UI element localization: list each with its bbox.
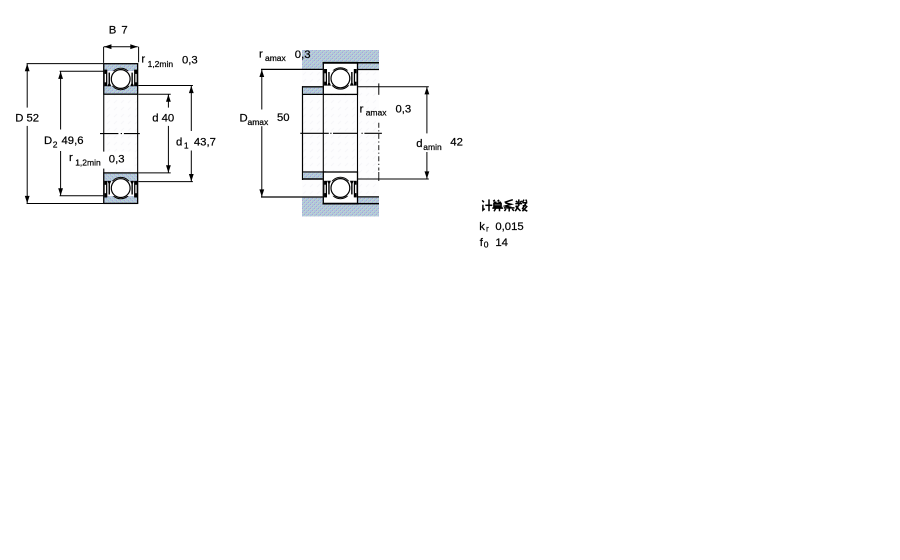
svg-text:D: D [44, 135, 52, 147]
svg-text:k: k [479, 221, 485, 233]
svg-text:0,3: 0,3 [182, 55, 198, 67]
svg-text:0,3: 0,3 [396, 104, 412, 116]
svg-text:D 52: D 52 [15, 113, 39, 125]
svg-text:r: r [259, 49, 263, 61]
svg-text:1,2min: 1,2min [75, 158, 101, 168]
svg-text:amax: amax [248, 117, 270, 127]
svg-text:1: 1 [184, 140, 189, 150]
svg-text:r: r [141, 54, 145, 66]
svg-text:r: r [486, 224, 489, 234]
svg-text:B: B [109, 25, 117, 37]
svg-text:43,7: 43,7 [194, 137, 216, 149]
svg-text:amax: amax [265, 53, 287, 63]
svg-text:50: 50 [277, 112, 290, 124]
svg-text:0: 0 [484, 240, 489, 250]
svg-text:7: 7 [121, 25, 127, 37]
svg-text:42: 42 [450, 137, 463, 149]
svg-text:amin: amin [423, 142, 442, 152]
svg-text:14: 14 [495, 237, 508, 249]
svg-text:0,015: 0,015 [495, 221, 523, 233]
svg-text:D: D [240, 113, 248, 125]
svg-text:d 40: d 40 [152, 113, 174, 125]
svg-text:0,3: 0,3 [295, 49, 311, 61]
svg-text:2: 2 [53, 139, 58, 149]
svg-text:r: r [69, 152, 73, 164]
svg-text:amax: amax [366, 107, 388, 117]
svg-text:1,2min: 1,2min [148, 59, 174, 69]
svg-text:d: d [176, 137, 182, 149]
svg-text:0,3: 0,3 [109, 153, 125, 165]
svg-text:r: r [360, 103, 364, 115]
svg-text:d: d [416, 138, 422, 150]
svg-text:49,6: 49,6 [62, 135, 84, 147]
